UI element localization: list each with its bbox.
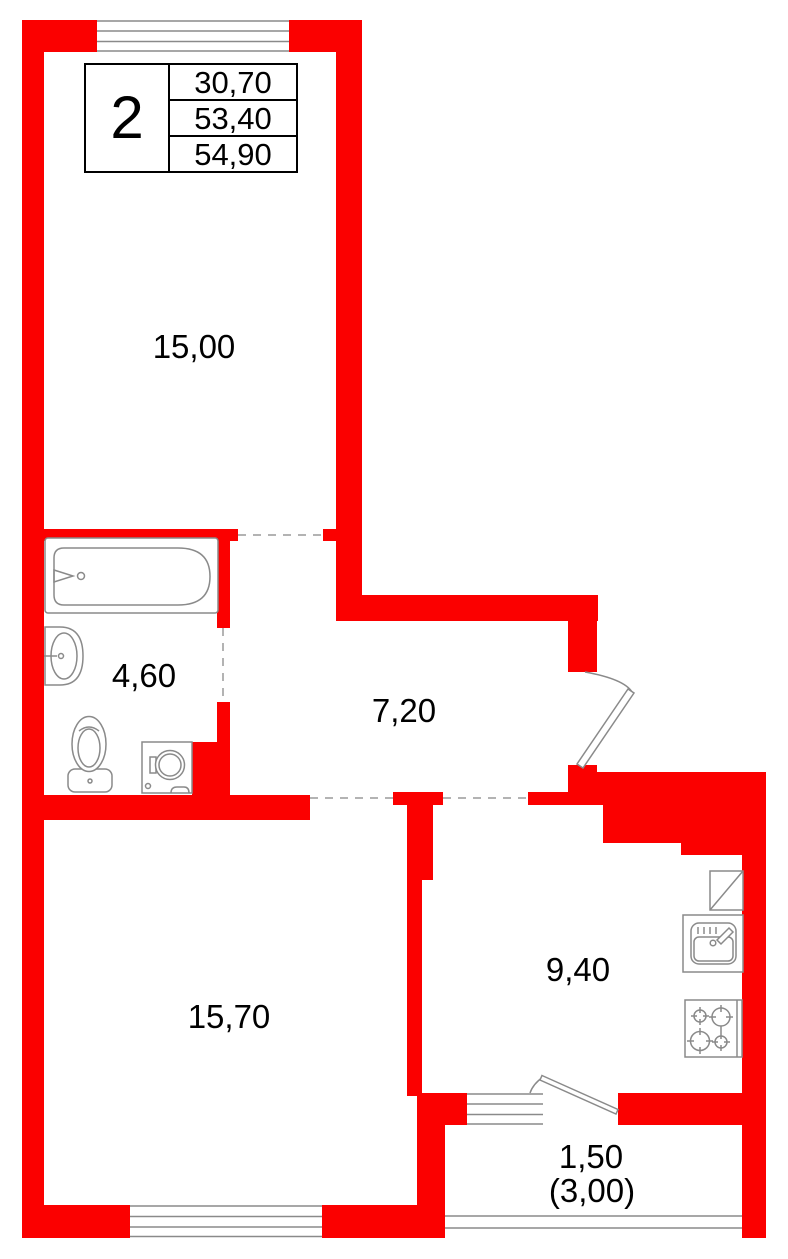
window-top-icon <box>97 21 289 51</box>
wall-segment <box>417 1093 467 1125</box>
room-label-hallway: 7,20 <box>372 692 436 730</box>
wall-segment <box>362 595 598 621</box>
area-value-row: 53,40 <box>170 101 296 137</box>
room-label-balcony-total: (3,00) <box>549 1172 635 1210</box>
floor-plan-drawing <box>0 0 788 1259</box>
wall-segment <box>681 843 766 855</box>
wall-segment <box>603 805 766 843</box>
wall-segment <box>336 20 362 621</box>
room-label-living1: 15,00 <box>153 328 236 366</box>
room-label-bathroom: 4,60 <box>112 657 176 695</box>
kitchen-sink-icon <box>683 915 743 972</box>
wall-segment <box>407 805 433 880</box>
openings-layer <box>223 535 528 798</box>
wall-segment <box>44 20 97 52</box>
room-label-living2: 15,70 <box>188 998 271 1036</box>
kitchen-fixtures <box>683 871 743 1057</box>
wall-segment <box>618 1093 742 1125</box>
apartment-areas: 30,70 53,40 54,90 <box>170 65 296 171</box>
wall-segment <box>323 529 337 541</box>
area-value-row: 54,90 <box>170 137 296 171</box>
wall-segment <box>592 772 766 805</box>
walls-layer <box>22 20 766 1238</box>
room-label-kitchen: 9,40 <box>546 951 610 989</box>
bathtub-icon <box>45 538 218 613</box>
window-balcony-icon <box>467 1094 543 1124</box>
wall-segment <box>22 795 310 820</box>
apartment-info-box: 2 30,70 53,40 54,90 <box>84 63 298 173</box>
wall-segment <box>407 880 422 1096</box>
washbasin-icon <box>44 627 83 685</box>
wall-segment <box>322 1205 445 1238</box>
wall-segment <box>568 621 597 672</box>
doors-layer <box>530 672 634 1114</box>
entry-door-icon <box>577 672 634 768</box>
toilet-icon <box>68 717 112 793</box>
wall-segment <box>192 742 230 797</box>
fridge-icon <box>710 871 743 910</box>
wall-segment <box>393 792 443 805</box>
washing-machine-icon <box>142 742 192 793</box>
balcony-edge <box>445 1216 742 1228</box>
room-label-balcony: 1,50 <box>559 1138 623 1176</box>
wall-segment <box>22 1205 130 1238</box>
wall-segment <box>528 792 592 805</box>
wall-segment <box>217 538 230 628</box>
balcony-door-icon <box>530 1076 618 1115</box>
wall-segment <box>22 20 44 1238</box>
wall-segment <box>742 855 766 1238</box>
window-bottom-icon <box>130 1206 322 1237</box>
floor-plan: 2 30,70 53,40 54,90 15,00 4,60 7,20 15,7… <box>0 0 788 1259</box>
apartment-number: 2 <box>86 65 170 171</box>
area-value-row: 30,70 <box>170 65 296 101</box>
stove-icon <box>685 1000 742 1057</box>
